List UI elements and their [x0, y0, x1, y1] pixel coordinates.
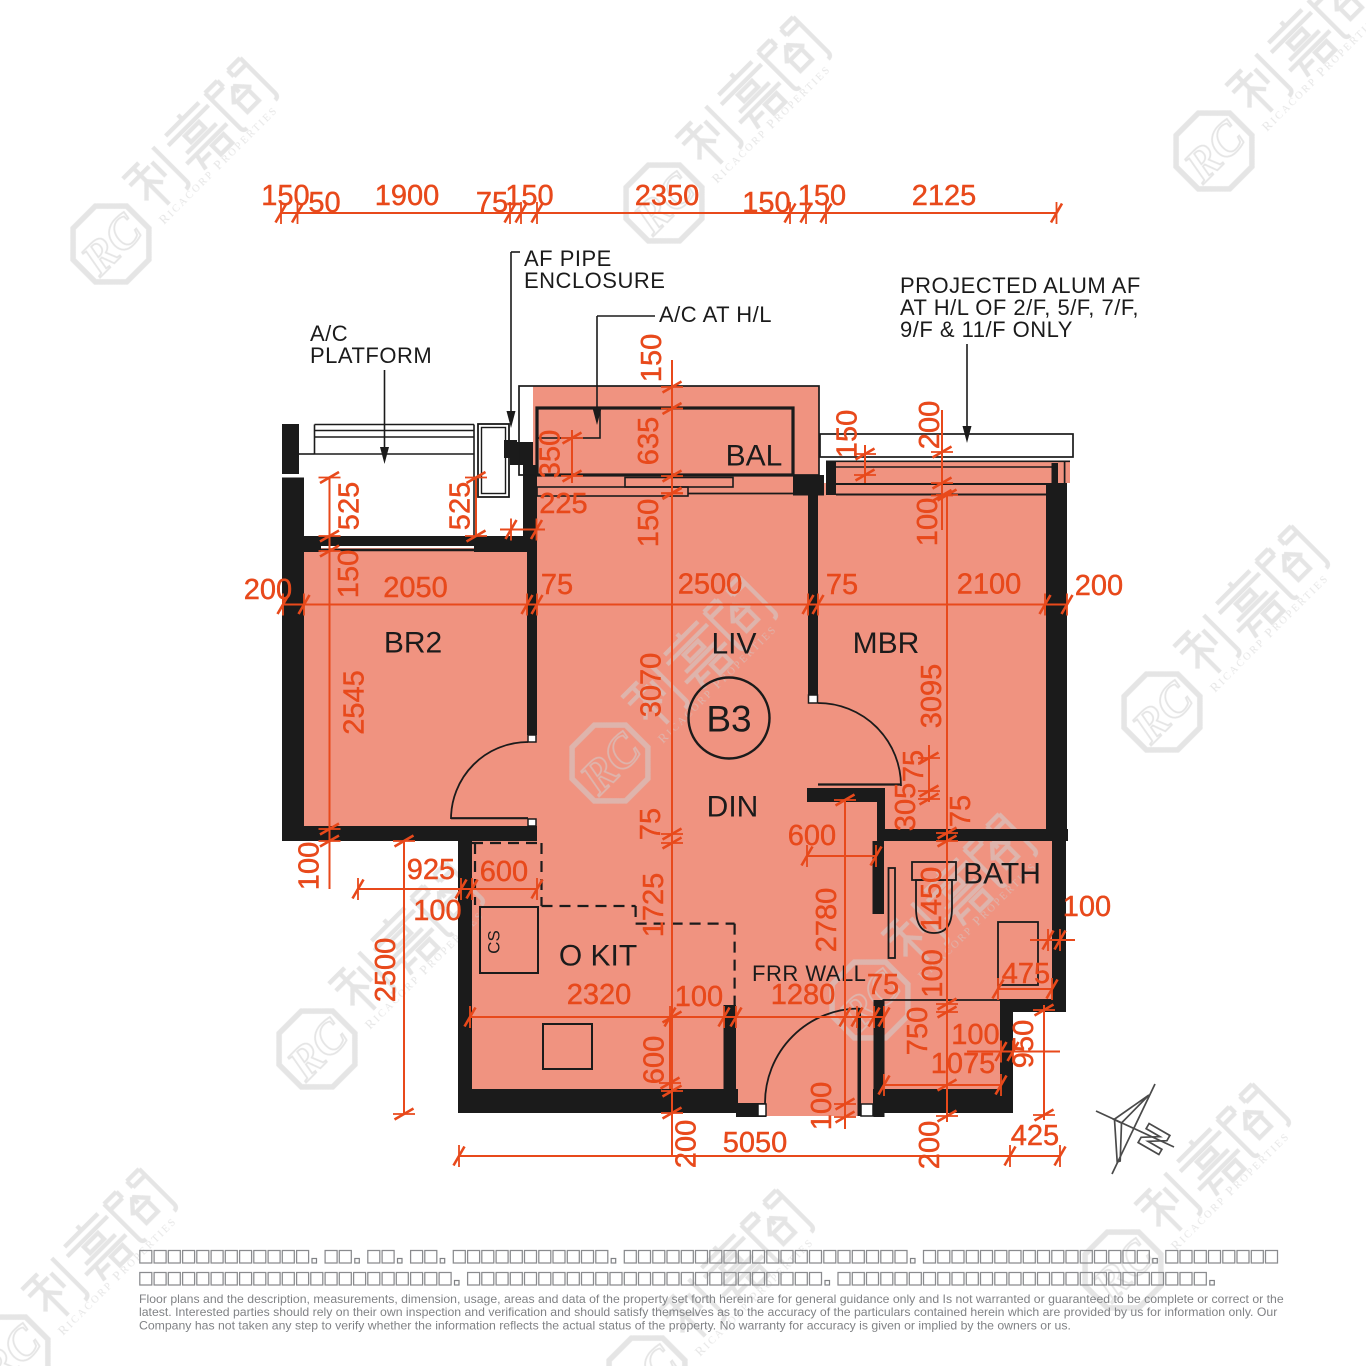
svg-text:latest. Interested parties sho: latest. Interested parties should rely o…	[139, 1305, 1277, 1319]
svg-text:Company has not taken any step: Company has not taken any step to verify…	[139, 1318, 1071, 1332]
svg-text:100: 100	[1063, 891, 1111, 923]
svg-text:O KIT: O KIT	[559, 940, 637, 973]
svg-text:2500: 2500	[370, 938, 402, 1003]
svg-text:475: 475	[1002, 958, 1050, 990]
svg-text:150: 150	[742, 187, 790, 219]
svg-text:100: 100	[294, 842, 326, 890]
svg-text:600: 600	[788, 820, 836, 852]
svg-text:B3: B3	[706, 699, 751, 740]
svg-text:2500: 2500	[678, 569, 743, 601]
svg-text:2050: 2050	[383, 572, 448, 604]
svg-text:200: 200	[914, 1121, 946, 1169]
svg-text:150: 150	[505, 180, 553, 212]
svg-text:75: 75	[635, 808, 667, 840]
svg-text:305: 305	[890, 783, 922, 831]
svg-text:5050: 5050	[723, 1127, 788, 1159]
svg-text:150: 150	[798, 180, 846, 212]
svg-text:150: 150	[261, 180, 309, 212]
svg-text:LIV: LIV	[711, 628, 756, 661]
svg-text:200: 200	[244, 574, 292, 606]
svg-text:100: 100	[912, 498, 944, 546]
svg-text:75: 75	[867, 969, 899, 1001]
svg-text:PLATFORM: PLATFORM	[310, 343, 432, 368]
svg-text:635: 635	[633, 417, 665, 465]
svg-text:200: 200	[671, 1120, 703, 1168]
svg-text:100: 100	[806, 1082, 838, 1130]
svg-text:2320: 2320	[567, 979, 632, 1011]
svg-text:150: 150	[832, 410, 864, 458]
svg-text:425: 425	[1011, 1120, 1059, 1152]
svg-text:150: 150	[633, 499, 665, 547]
svg-text:50: 50	[308, 187, 340, 219]
svg-text:1075: 1075	[931, 1048, 996, 1080]
svg-text:2125: 2125	[912, 180, 977, 212]
svg-text:CS: CS	[485, 930, 504, 954]
svg-text:ENCLOSURE: ENCLOSURE	[524, 268, 665, 293]
svg-text:525: 525	[445, 482, 477, 530]
svg-text:75: 75	[945, 795, 977, 827]
svg-text:1900: 1900	[375, 180, 440, 212]
svg-text:BAL: BAL	[726, 440, 783, 473]
svg-text:75: 75	[541, 569, 573, 601]
svg-text:150: 150	[333, 550, 365, 598]
svg-text:200: 200	[914, 401, 946, 449]
svg-text:1725: 1725	[638, 873, 670, 938]
svg-text:350: 350	[535, 430, 567, 478]
svg-text:2100: 2100	[957, 569, 1022, 601]
svg-text:100: 100	[675, 981, 723, 1013]
svg-text:525: 525	[334, 482, 366, 530]
svg-text:150: 150	[636, 334, 668, 382]
svg-text:2545: 2545	[339, 670, 371, 735]
svg-text:75: 75	[476, 187, 508, 219]
svg-text:75: 75	[826, 569, 858, 601]
svg-text:1280: 1280	[771, 979, 836, 1011]
svg-text:Floor plans and the descriptio: Floor plans and the description, measure…	[139, 1292, 1284, 1306]
svg-text:A/C AT H/L: A/C AT H/L	[659, 302, 772, 327]
svg-text:3095: 3095	[916, 664, 948, 729]
svg-text:9/F & 11/F ONLY: 9/F & 11/F ONLY	[900, 317, 1073, 342]
svg-text:100: 100	[917, 949, 949, 997]
svg-text:225: 225	[539, 488, 587, 520]
svg-text:BATH: BATH	[963, 858, 1041, 891]
svg-text:1450: 1450	[916, 867, 948, 932]
svg-text:925: 925	[407, 854, 455, 886]
svg-text:200: 200	[1075, 570, 1123, 602]
svg-text:950: 950	[1008, 1020, 1040, 1068]
svg-text:600: 600	[639, 1036, 671, 1084]
svg-text:600: 600	[480, 856, 528, 888]
svg-text:100: 100	[413, 895, 461, 927]
svg-text:100: 100	[951, 1019, 999, 1051]
svg-text:DIN: DIN	[707, 791, 759, 824]
svg-text:75: 75	[898, 750, 930, 782]
svg-text:2780: 2780	[811, 888, 843, 953]
svg-text:750: 750	[902, 1007, 934, 1055]
svg-text:2350: 2350	[635, 180, 700, 212]
svg-text:BR2: BR2	[384, 627, 442, 660]
svg-text:MBR: MBR	[853, 627, 920, 660]
svg-text:3070: 3070	[636, 653, 668, 718]
